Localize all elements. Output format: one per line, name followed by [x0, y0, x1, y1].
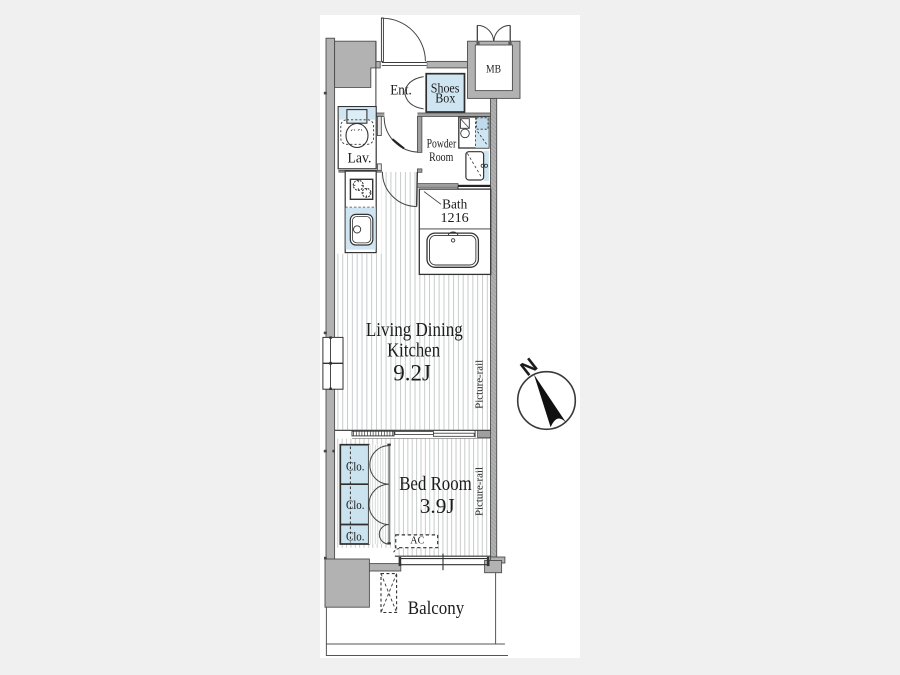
svg-text:Kitchen: Kitchen: [387, 339, 440, 361]
svg-text:Living Dining: Living Dining: [366, 319, 463, 341]
svg-text:Balcony: Balcony: [408, 598, 465, 619]
svg-text:MB: MB: [486, 62, 501, 76]
svg-text:Box: Box: [435, 92, 455, 107]
svg-text:AC: AC: [410, 536, 424, 547]
svg-text:Room: Room: [429, 149, 453, 164]
svg-text:Lav.: Lav.: [348, 151, 372, 167]
svg-text:Picture-rail: Picture-rail: [475, 360, 486, 409]
svg-text:3.9J: 3.9J: [420, 494, 455, 518]
svg-text:Clo.: Clo.: [346, 460, 365, 474]
svg-text:1216: 1216: [441, 211, 469, 226]
svg-text:Picture-rail: Picture-rail: [475, 467, 486, 516]
svg-text:Clo.: Clo.: [346, 498, 365, 512]
svg-text:Clo.: Clo.: [346, 530, 365, 544]
svg-text:9.2J: 9.2J: [393, 360, 431, 386]
svg-text:Ent.: Ent.: [390, 83, 412, 99]
svg-text:Bed Room: Bed Room: [399, 474, 472, 495]
